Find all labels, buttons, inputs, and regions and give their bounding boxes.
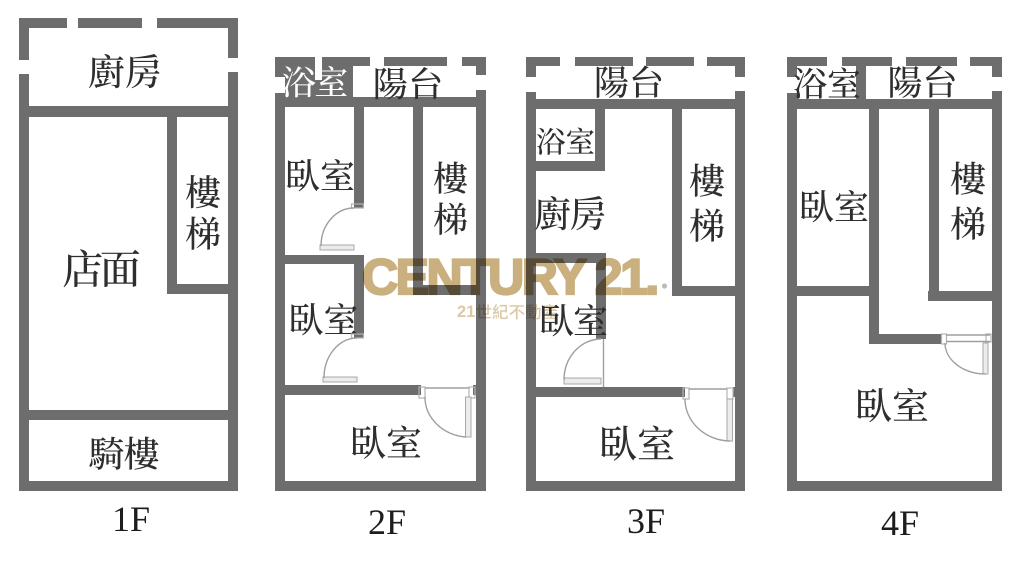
svg-text:21: 21 xyxy=(457,303,475,321)
svg-text:4F: 4F xyxy=(881,503,919,543)
svg-text:2F: 2F xyxy=(368,502,406,542)
svg-text:CENTURY 21.: CENTURY 21. xyxy=(362,249,657,305)
svg-text:3F: 3F xyxy=(627,501,665,541)
svg-text:1F: 1F xyxy=(112,499,150,539)
